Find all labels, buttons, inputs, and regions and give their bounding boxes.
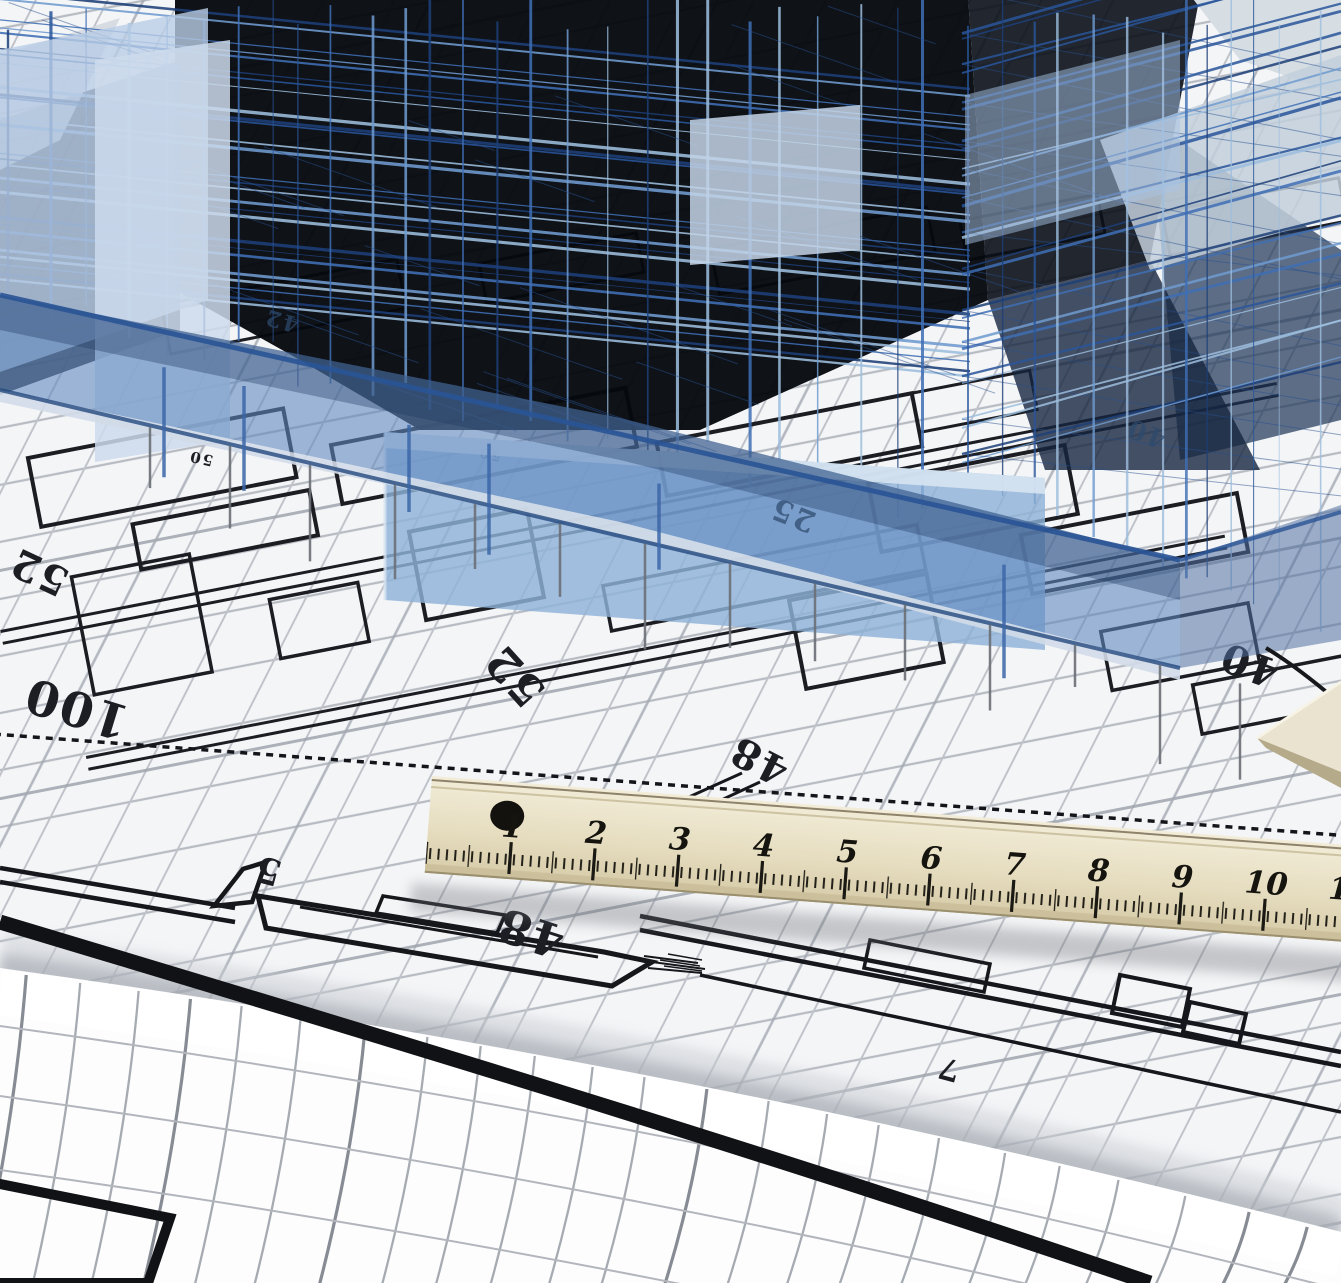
blueprint-scene: 100 52 52 48 48 5 40 7 50 50 (0, 0, 1341, 1283)
ruler-number-10: 10 (1243, 864, 1289, 903)
ruler-number-9: 9 (1170, 859, 1194, 897)
ruler-number-11: 11 (1327, 871, 1341, 910)
ruler-number-2: 2 (583, 815, 608, 853)
ruler-number-1: 1 (500, 808, 524, 846)
ruler-number-5: 5 (835, 834, 859, 872)
ruler-number-8: 8 (1086, 852, 1111, 890)
ruler-number-7: 7 (1003, 846, 1028, 884)
ruler-number-3: 3 (668, 821, 692, 859)
ruler-number-4: 4 (752, 827, 776, 865)
ruler-number-6: 6 (919, 840, 943, 878)
scene-illustration: 100 52 52 48 48 5 40 7 50 50 (0, 0, 1341, 1283)
